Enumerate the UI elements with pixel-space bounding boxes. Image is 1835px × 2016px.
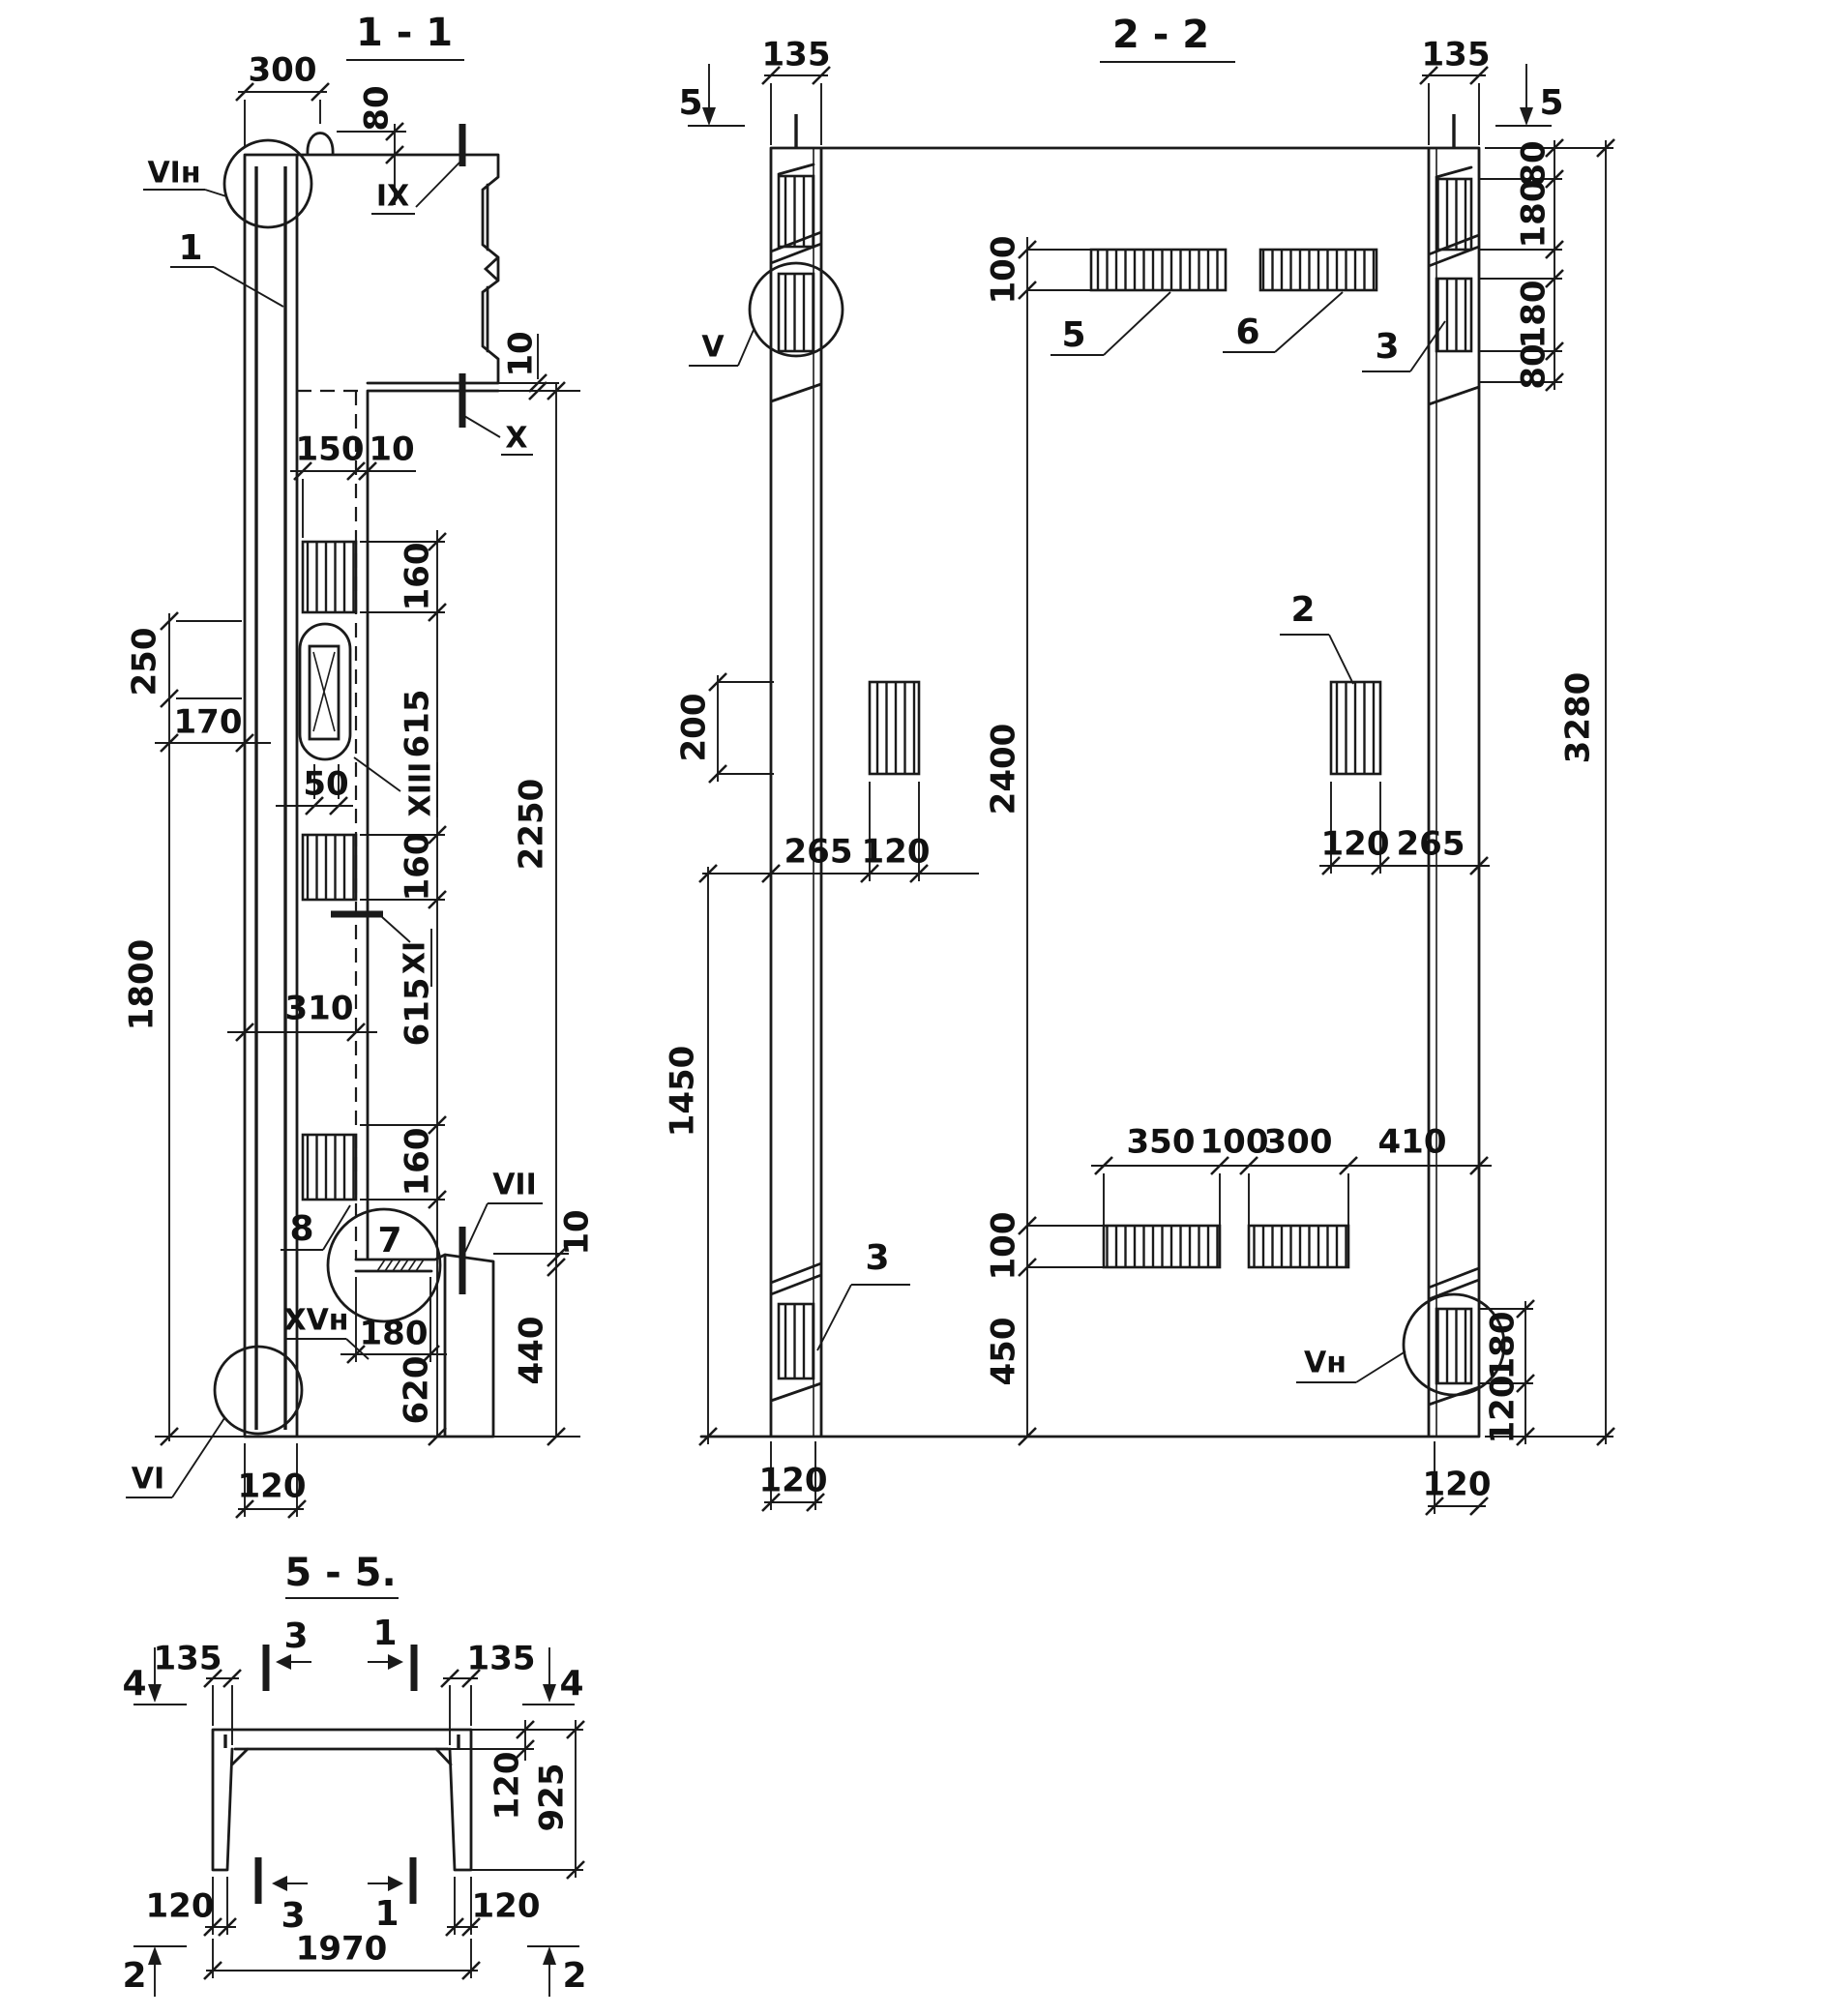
- cut-mark-3: 3: [281, 1896, 305, 1936]
- dim-120: 120: [1321, 825, 1390, 864]
- dim-120: 120: [488, 1752, 527, 1821]
- dim-100: 100: [985, 236, 1023, 305]
- dim-450: 450: [985, 1318, 1023, 1386]
- dim-120: 120: [472, 1887, 541, 1926]
- mark-IX: IX: [376, 180, 409, 214]
- part-1: 1: [178, 228, 202, 268]
- section-title: 2 - 2: [1112, 13, 1209, 57]
- section-mark-2: 2: [562, 1956, 586, 1996]
- arrow-left-icon: [276, 1654, 291, 1670]
- section-arrow-lines: [709, 64, 1526, 110]
- embed-plate: [779, 274, 814, 351]
- dim-160: 160: [399, 543, 437, 611]
- embed-plate: [779, 1304, 814, 1379]
- dim-300: 300: [1264, 1123, 1333, 1162]
- arrow-down-icon: [148, 1684, 162, 1703]
- dim-80: 80: [358, 85, 397, 131]
- embed-plate: [303, 542, 356, 612]
- dim-120: 120: [146, 1887, 215, 1926]
- dim-615: 615: [399, 690, 437, 758]
- section-title: 5 - 5.: [284, 1551, 396, 1595]
- section-mark-5: 5: [1539, 83, 1563, 123]
- dim-120: 120: [1484, 1376, 1523, 1444]
- part-2: 2: [1290, 590, 1315, 630]
- detail-circle-VIn: [224, 140, 311, 227]
- dim-135: 135: [154, 1640, 222, 1678]
- dim-160: 160: [399, 1128, 437, 1197]
- dim-620: 620: [398, 1356, 436, 1425]
- dim-2400: 2400: [985, 724, 1023, 815]
- embed-plate: [1436, 1309, 1471, 1383]
- part-3: 3: [865, 1238, 889, 1278]
- mark-XI: XI: [399, 941, 432, 974]
- part-5: 5: [1061, 315, 1085, 355]
- dimension-ticks: [161, 83, 565, 1518]
- cut-mark-1: 1: [374, 1894, 399, 1934]
- dim-10: 10: [502, 331, 541, 376]
- dim-135: 135: [467, 1640, 536, 1678]
- mark-V: V: [701, 331, 725, 365]
- section-mark-5: 5: [678, 83, 702, 123]
- drawing-sheet: 1 - 1 300 80 10 150 10 160 615 160 615 1…: [0, 0, 1835, 2016]
- part-6: 6: [1235, 312, 1259, 352]
- arrow-down-icon: [1520, 107, 1533, 126]
- corner-bar-marks: [225, 1734, 459, 1748]
- dim-135: 135: [762, 36, 831, 74]
- arrow-down-icon: [543, 1684, 556, 1703]
- cut-mark-3: 3: [283, 1616, 308, 1656]
- embed-plate-5: [1091, 250, 1226, 290]
- slot-detail: [313, 652, 335, 731]
- dim-120: 120: [1423, 1466, 1492, 1504]
- dim-150: 150: [296, 430, 365, 469]
- section-title: 1 - 1: [356, 11, 453, 55]
- embed-plate: [1436, 279, 1471, 351]
- arrow-down-icon: [702, 107, 716, 126]
- embed-plate: [303, 835, 356, 900]
- dim-100: 100: [985, 1212, 1023, 1281]
- lip-hatch: [377, 1260, 424, 1271]
- embed-plate: [779, 176, 814, 247]
- dim-80: 80: [1515, 343, 1554, 389]
- dim-265: 265: [784, 833, 853, 872]
- dim-120: 120: [238, 1468, 307, 1506]
- part-8: 8: [289, 1209, 313, 1249]
- dim-265: 265: [1397, 825, 1465, 864]
- arrow-up-icon: [148, 1946, 162, 1965]
- cut-bars: [258, 1645, 414, 1904]
- mark-VIn: VIн: [147, 157, 200, 191]
- dim-615: 615: [399, 978, 437, 1047]
- dim-10: 10: [369, 430, 414, 469]
- dim-10: 10: [558, 1209, 597, 1255]
- dim-3280: 3280: [1559, 672, 1598, 764]
- dim-1970: 1970: [296, 1930, 388, 1969]
- rebar-lines: [256, 166, 285, 1430]
- section-5-5-outline: [213, 1730, 471, 1870]
- dim-250: 250: [126, 628, 164, 697]
- dim-1800: 1800: [123, 939, 162, 1031]
- dim-410: 410: [1378, 1123, 1447, 1162]
- dim-300: 300: [249, 51, 317, 90]
- dim-180: 180: [1484, 1312, 1523, 1380]
- dim-120: 120: [862, 833, 931, 872]
- embed-plate: [303, 1135, 356, 1200]
- section-mark-4: 4: [122, 1664, 146, 1704]
- mark-VI: VI: [132, 1463, 164, 1497]
- mark-XVn: XVн: [283, 1304, 348, 1338]
- hidden-edge: [297, 391, 361, 1260]
- dim-350: 350: [1127, 1123, 1196, 1162]
- mark-XIII: XIII: [404, 762, 438, 817]
- mark-X: X: [505, 422, 527, 456]
- technical-drawing: 1 - 1 300 80 10 150 10 160 615 160 615 1…: [0, 0, 1835, 2016]
- embed-plate-6: [1260, 250, 1376, 290]
- dim-100: 100: [1200, 1123, 1269, 1162]
- embed-plate: [870, 682, 919, 774]
- embed-plate: [1436, 179, 1471, 250]
- mark-Vn: Vн: [1304, 1347, 1347, 1380]
- dim-1450: 1450: [664, 1046, 702, 1138]
- embed-plate: [1104, 1226, 1220, 1267]
- dim-2250: 2250: [513, 779, 551, 871]
- dim-50: 50: [303, 765, 348, 804]
- arrow-right-icon: [388, 1654, 403, 1670]
- dim-135: 135: [1422, 36, 1491, 74]
- dim-925: 925: [533, 1764, 572, 1832]
- dim-200: 200: [675, 694, 714, 762]
- mark-VII: VII: [492, 1169, 537, 1202]
- section-5-5: 5 - 5. 135 135 120 925 120 120 1970 4 4 …: [122, 1551, 586, 1997]
- section-mark-4: 4: [559, 1664, 583, 1704]
- arrow-up-icon: [543, 1946, 556, 1965]
- embed-plate: [1249, 1226, 1348, 1267]
- section-2-2: 2 - 2 135 135 5 5 80 180 180 80 3280 100…: [664, 13, 1615, 1515]
- section-1-1: 1 - 1 300 80 10 150 10 160 615 160 615 1…: [123, 11, 597, 1518]
- section-mark-2: 2: [122, 1956, 146, 1996]
- dim-310: 310: [285, 990, 354, 1028]
- dim-170: 170: [174, 703, 243, 742]
- dim-180: 180: [360, 1315, 429, 1353]
- embed-plate-2: [1331, 682, 1380, 774]
- dim-180: 180: [1515, 281, 1554, 349]
- section-2-2-outline: [701, 148, 1479, 1437]
- dim-180: 180: [1515, 180, 1554, 249]
- arrow-right-icon: [388, 1876, 403, 1891]
- part-7: 7: [377, 1221, 401, 1260]
- part-3: 3: [1375, 327, 1399, 367]
- dim-160: 160: [399, 833, 437, 902]
- dim-440: 440: [513, 1317, 551, 1385]
- arrow-left-icon: [272, 1876, 287, 1891]
- rebar-stubs: [796, 114, 1454, 148]
- detail-circle-VI: [215, 1347, 302, 1434]
- leader-lines: [172, 162, 500, 1497]
- dim-120: 120: [759, 1462, 828, 1500]
- cut-mark-1: 1: [372, 1614, 397, 1653]
